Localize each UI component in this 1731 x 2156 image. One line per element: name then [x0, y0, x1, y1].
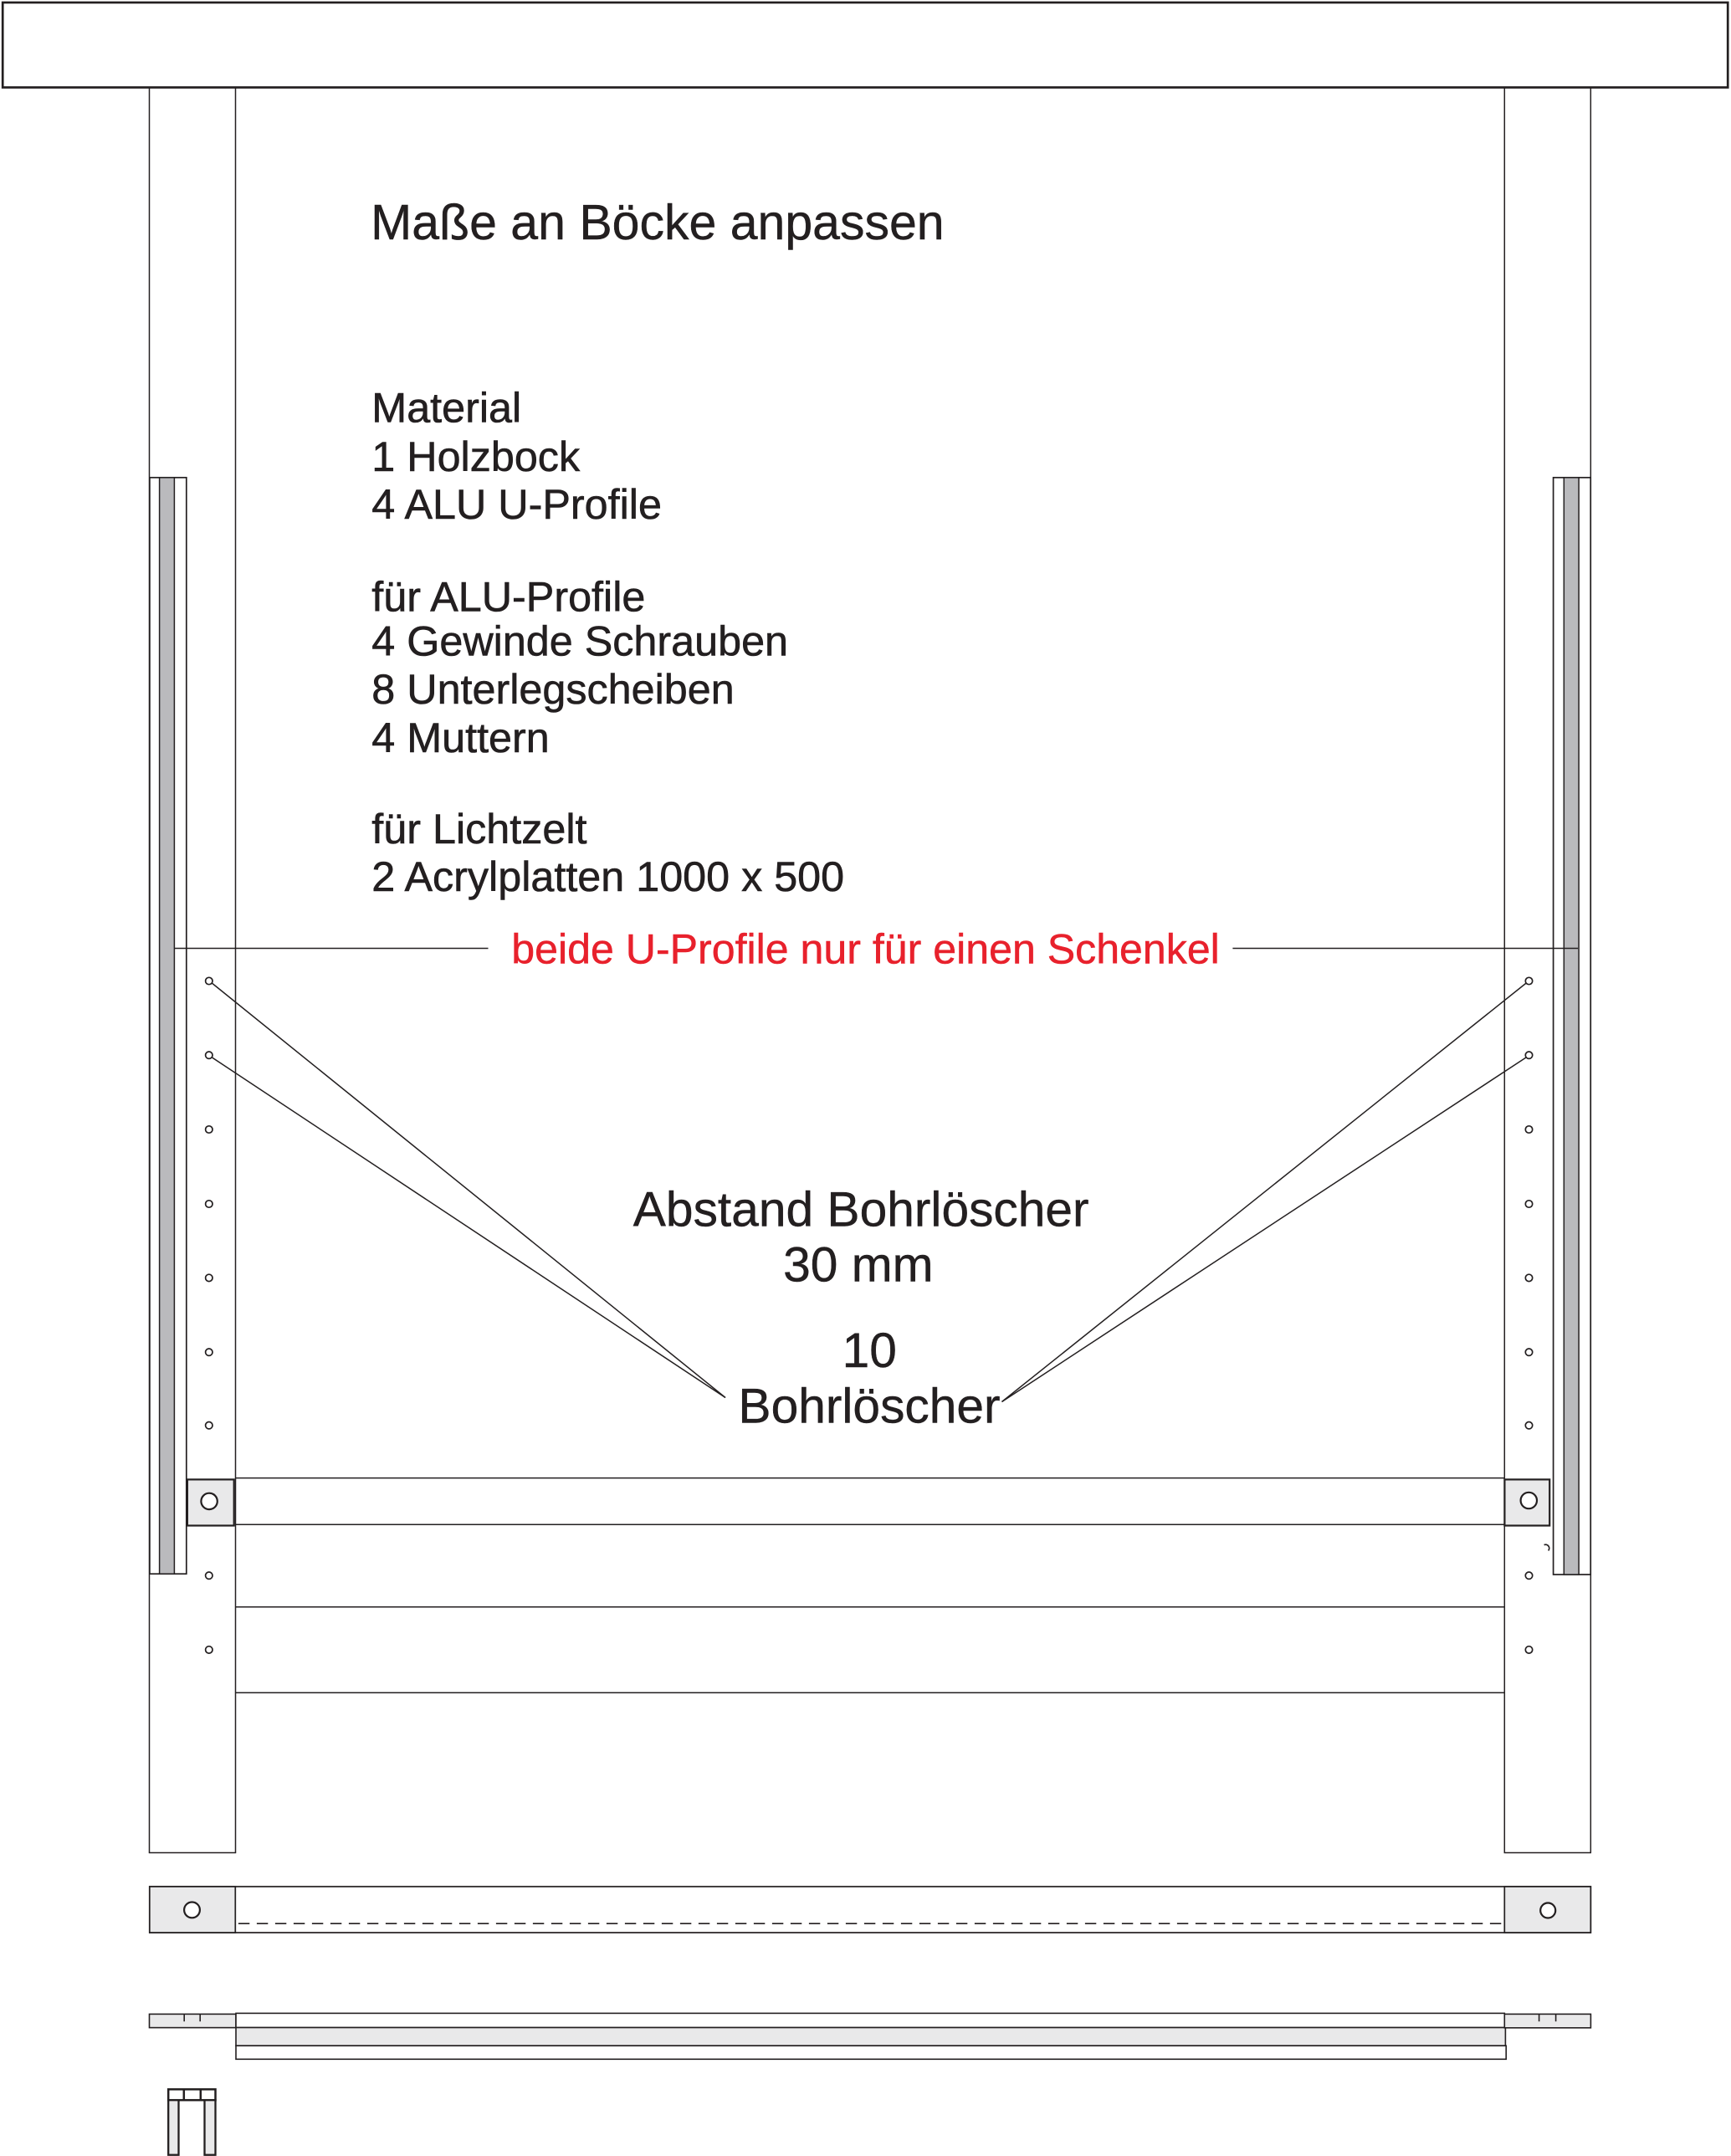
svg-text:30 mm: 30 mm	[783, 1238, 933, 1293]
svg-text:Bohrlöscher: Bohrlöscher	[738, 1379, 1000, 1433]
svg-text:1 Holzbock: 1 Holzbock	[371, 433, 581, 480]
svg-text:für Lichtzelt: für Lichtzelt	[371, 805, 586, 853]
svg-text:4 ALU U-Profile: 4 ALU U-Profile	[371, 480, 662, 528]
svg-text:8 Unterlegscheiben: 8 Unterlegscheiben	[371, 665, 734, 713]
svg-text:Maße an Böcke anpassen: Maße an Böcke anpassen	[371, 195, 944, 250]
svg-text:4 Muttern: 4 Muttern	[371, 714, 549, 761]
svg-text:10: 10	[842, 1324, 897, 1378]
svg-text:Abstand Bohrlöscher: Abstand Bohrlöscher	[633, 1183, 1089, 1237]
svg-text:beide U-Profile nur für einen: beide U-Profile nur für einen Schenkel	[511, 926, 1220, 973]
svg-text:Material: Material	[371, 384, 521, 432]
svg-text:für ALU-Profile: für ALU-Profile	[371, 572, 645, 620]
svg-text:2 Acrylplatten 1000 x 500: 2 Acrylplatten 1000 x 500	[371, 853, 844, 900]
svg-text:4 Gewinde Schrauben: 4 Gewinde Schrauben	[371, 617, 788, 664]
